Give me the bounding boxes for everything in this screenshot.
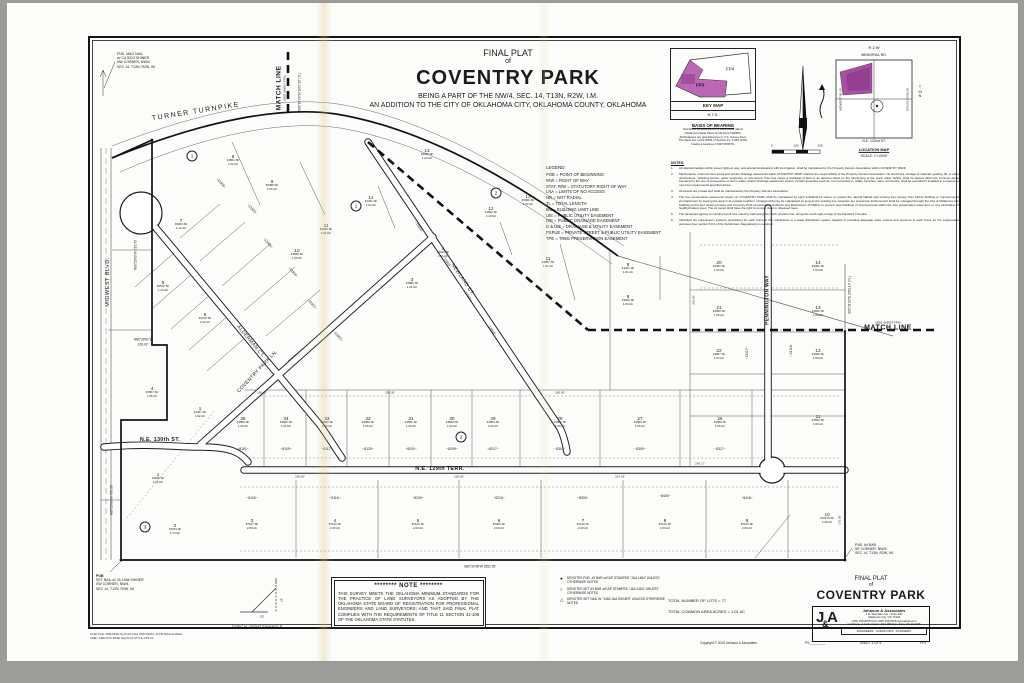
monument-symbol-item: ●DENOTES FND. #3 BAR w/CAP STAMPED "J&A … [560, 576, 670, 584]
lot-area-ac: 2.00 AC [659, 527, 672, 530]
lot-area-ac: 1.01 AC [622, 271, 635, 274]
legend-item: TPE = TREE PRESERVATION EASEMENT [546, 236, 676, 242]
dimension-label: 150.00' [385, 391, 395, 394]
lot-address: ~8400~ [659, 494, 671, 498]
basis-of-bearing: BASIS OF BEARING Grid North as establish… [662, 123, 764, 147]
plat-sheet: { "title_block": { "line1": "FINAL PLAT"… [0, 0, 1024, 683]
totals: TOTAL NUMBER OF LOTS = 77 TOTAL COMMON A… [668, 598, 745, 620]
lot-area-ac: 2.00 AC [741, 527, 754, 530]
lot-label: 3143560 SF1.00 AC [405, 416, 418, 428]
dimension-label: 160.00' [295, 475, 305, 478]
lot-label: 844201 SF1.01 AC [622, 262, 635, 274]
monument-symbol-glyph: ○ [560, 587, 567, 595]
survey-note-title: ******** NOTE ******** [338, 583, 479, 589]
lot-label: 549572 SF1.14 AC [157, 280, 170, 292]
lot-area-ac: 1.24 AC [421, 157, 434, 160]
legend-title: LEGEND: [546, 165, 676, 170]
lot-address: ~13117~ [745, 346, 749, 359]
lot-label: 387017 SF2.00 AC [246, 518, 259, 530]
note-item: 3.All streets are private and shall be m… [671, 190, 959, 194]
lot-area-ac: 1.00 AC [622, 303, 635, 306]
monument-symbol-text: DENOTES SET NAIL IN "1484 J&A SHINER" UN… [567, 597, 670, 605]
lot-address: ~8125~ [362, 447, 374, 451]
monument-symbol-text: DENOTES SET #3 BAR w/CAP STAMPED "J&A 14… [567, 587, 670, 595]
lot-label: 887120 SF2.00 AC [659, 518, 672, 530]
lot-label: 343985 SF1.01 AC [406, 277, 419, 289]
lot-label: 1143560 SF1.00 AC [812, 414, 825, 426]
note-item-text: Maintenance of all common areas and priv… [679, 173, 959, 188]
lot-label: 587120 SF2.00 AC [412, 518, 425, 530]
lot-area-ac: 2.00 AC [412, 527, 425, 530]
block-number-circle: 3 [140, 522, 151, 533]
corner-note-line: NW CORNER, NW/4, [117, 60, 155, 64]
lot-area-ac: 2.00 AC [577, 527, 590, 530]
monument-symbol-item: △DENOTES SET NAIL IN "1484 J&A SHINER" U… [560, 597, 670, 605]
firm-box: J & A Johnson & Associates 1 E. Sheridan… [812, 606, 930, 642]
copyright: Copyright © 2025 Johnson & Associates [700, 641, 805, 645]
lot-address: ~8209~ [446, 447, 458, 451]
monument-symbol-legend: ●DENOTES FND. #3 BAR w/CAP STAMPED "J&A … [560, 576, 670, 608]
lot-label: 2643560 SF1.00 AC [714, 416, 727, 428]
lot-address: ~8200~ [405, 447, 417, 451]
lot-label: 943560 SF1.00 AC [622, 294, 635, 306]
firm-info: Johnson & Associates 1 E. Sheridan Ave.,… [839, 607, 929, 641]
title-of: of [350, 58, 666, 65]
sight-triangle-dim-h: 25' [260, 615, 264, 618]
scale-bar-label: 200 [817, 144, 822, 147]
sight-triangle-dim-v: 25' [280, 598, 283, 602]
locmap-midwest-blvd: MIDWEST BLVD. [839, 87, 842, 110]
firm-logo: J & A [813, 607, 839, 641]
lot-area-ac: 1.12 AC [175, 227, 188, 230]
lot-area-ac: 1.01 AC [542, 265, 555, 268]
lot-label: 1044996 SF1.03 AC [291, 248, 304, 260]
locmap-range-label: R 2 W [868, 46, 879, 50]
lot-area-ac: 1.00 AC [634, 425, 647, 428]
corner-monument-note: FND. MAG NAILw/ CA 5313 SHINERNW CORNER,… [117, 52, 155, 69]
dimension-label: 150.00' [257, 391, 267, 394]
sheet-info-strip: Copyright © 2025 Johnson & Associates PV… [700, 641, 960, 645]
locmap-township-label: T 13 N [918, 85, 922, 99]
bearing-label: 100.00' [138, 343, 148, 346]
note-item: 5.The developer agrees to construct an 8… [671, 213, 959, 217]
lot-address: ~8309~ [634, 447, 646, 451]
lot-label: 749003 SF1.12 AC [175, 218, 188, 230]
lot-label: 2843560 SF1.00 AC [554, 416, 567, 428]
lot-label: 2045000 SF1.03 AC [713, 260, 726, 272]
block-number-circle: 1 [351, 201, 362, 212]
match-line-right-label: MATCH LINE [864, 325, 912, 332]
dimension-label: 142.35' [615, 475, 625, 478]
dimension-label: 175.00' [838, 515, 841, 525]
fp2-name: COVENTRY PARK [812, 588, 930, 602]
firm-logo-a: A [827, 609, 838, 626]
firm-cert: Certificate of Authorization #CA 983 Exp… [839, 623, 929, 626]
key-map-box: KEY MAP N.T.S. [670, 48, 756, 120]
note-item-text: All islands/medians within street rights… [679, 167, 907, 171]
lot-area-ac: 1.00 AC [713, 314, 726, 317]
corner-note-line: SEC 14, T13N, R2W, IM [855, 551, 893, 555]
block-number-circle: 1 [187, 151, 198, 162]
scale-bar-label: 0 [771, 144, 773, 147]
sheet-number: SHEET 3 OF 4 [860, 641, 920, 645]
survey-note-body: THIS SURVEY MEETS THE OKLAHOMA MINIMUM S… [338, 591, 479, 623]
plot-file-line: ACAD FILE: 4488 FINAL PLAT-FP3.dwg 03/07… [90, 633, 182, 637]
lot-label: 844501 SF1.02 AC [227, 154, 240, 166]
lot-area-ac: 1.03 AC [320, 232, 333, 235]
lot-area-ac: 1.01 AC [406, 286, 419, 289]
lot-label: 487120 SF2.00 AC [329, 518, 342, 530]
lot-area-ac: 1.00 AC [362, 425, 375, 428]
bearing-label: S00°21'03"E 2031.14' (TL) [848, 276, 851, 314]
dimension-label: 165.00' [555, 391, 565, 394]
corner-monument-note: POBSET NAIL w/ JA 1484 SHINERSW CORNER, … [96, 574, 144, 591]
dimension-label: 363.00' [692, 295, 695, 305]
title-addition: AN ADDITION TO THE CITY OF OKLAHOMA CITY… [350, 102, 666, 109]
lot-area-ac: 1.02 AC [227, 163, 240, 166]
lot-label: 687000 SF2.00 AC [493, 518, 506, 530]
survey-note-box: ******** NOTE ******** THIS SURVEY MEETS… [331, 577, 486, 628]
lot-label: 144407 SF1.02 AC [194, 406, 207, 418]
lot-label: 1143867 SF1.01 AC [542, 256, 555, 268]
legend: LEGEND: POB = POINT OF BEGINNINGR/W = RI… [546, 165, 676, 242]
street-label: MIDWEST BLVD. [106, 257, 112, 306]
lot-label: 3043560 SF1.00 AC [446, 416, 459, 428]
lot-label: 1244932 SF1.13 AC [485, 206, 498, 218]
sight-triangle-caption: TYPICAL SIGHT TRIANGLE [232, 625, 283, 629]
lot-area-ac: 1.00 AC [812, 314, 825, 317]
lot-area-ac: 1.03 AC [291, 257, 304, 260]
lot-area-ac: 1.04 AC [199, 321, 212, 324]
total-lots: TOTAL NUMBER OF LOTS = 77 [668, 598, 745, 603]
corner-note-line: SEC 14, T13N, R2W, IM [96, 587, 144, 591]
lot-address: ~8200~ [412, 496, 424, 500]
dimension-label: 160.00' [454, 475, 464, 478]
lot-label: 645210 SF1.04 AC [199, 312, 212, 324]
locmap-memorial-rd: MEMORIAL RD. [861, 54, 887, 58]
monument-symbol-text: DENOTES FND. #3 BAR w/CAP STAMPED "J&A 1… [567, 576, 670, 584]
note-item-number: 2. [671, 173, 679, 188]
lot-area-ac: 1.00 AC [152, 481, 165, 484]
lot-address: ~8109~ [280, 447, 292, 451]
lot-label: 1243560 SF1.00 AC [812, 348, 825, 360]
locmap-title: LOCATION MAP [859, 148, 890, 152]
lot-label: 987120 SF2.00 AC [741, 518, 754, 530]
notes-column: NOTES: 1.All islands/medians within stre… [671, 161, 959, 229]
lot-address: ~8117~ [321, 447, 332, 451]
note-item: 4.The tree preservation easements shown … [671, 196, 959, 211]
lot-label: 1354046 SF1.24 AC [421, 148, 434, 160]
locmap-n: N [918, 94, 922, 99]
street-label: N.E. 129th TERR. [415, 467, 464, 473]
note-item-number: 3. [671, 190, 679, 194]
subdivision-name: COVENTRY PARK [350, 67, 666, 90]
lot-area-ac: 1.00 AC [554, 425, 567, 428]
notes-title: NOTES: [671, 161, 959, 165]
monument-symbol-glyph: ● [560, 576, 567, 584]
title-final-plat: FINAL PLAT [350, 48, 666, 58]
lot-address: ~8216~ [493, 496, 505, 500]
lot-area-ac: 1.00 AC [321, 425, 334, 428]
street-label: N.E. 130th ST. [140, 438, 180, 444]
lot-label: 275234 SF1.73 AC [169, 523, 182, 535]
lot-area-ac: 1.00 AC [405, 425, 418, 428]
plot-file-info: ACAD FILE: 4488 FINAL PLAT-FP3.dwg 03/07… [90, 633, 182, 640]
lot-area-ac: 1.73 AC [169, 532, 182, 535]
lot-label: 445807 SF1.05 AC [146, 386, 159, 398]
key-map-nts: N.T.S. [671, 110, 755, 117]
lot-label: 3243560 SF1.00 AC [362, 416, 375, 428]
lot-area-ac: 1.00 AC [812, 357, 825, 360]
lot-area-ac: 1.02 AC [194, 415, 207, 418]
lot-label: 3543560 SF1.00 AC [237, 416, 250, 428]
note-item-text: All streets are private and shall be mai… [679, 190, 789, 194]
lot-area-ac: 1.03 AC [812, 269, 825, 272]
locmap-scale: SCALE: 1"=2000' [860, 155, 887, 159]
lot-address: ~8301~ [554, 447, 566, 451]
note-item: 2.Maintenance of all common areas and pr… [671, 173, 959, 188]
locmap-douglas-blvd: DOUGLAS BLVD. [906, 87, 909, 111]
bearing-label: N00°20'09"W 735.90' [110, 485, 113, 515]
corner-monument-note: FND. #4 BARSE CORNER, NW/4,SEC 14, T13N,… [855, 543, 893, 556]
lot-area-ac: 1.00 AC [714, 425, 727, 428]
lot-area-ac: 2.00 AC [246, 527, 259, 530]
match-line-top-sub: (SEE SHEET FP4) [283, 66, 287, 111]
sheet-code: FP3 [920, 641, 926, 645]
total-common-area: TOTAL COMMON AREA ACRES = 1.01 AC [668, 609, 745, 614]
lot-label: 1445000 SF1.03 AC [812, 260, 825, 272]
bearing-label: N89°39'51"E [134, 338, 152, 341]
lot-area-ac: 1.00 AC [446, 425, 459, 428]
title-block-small: FINAL PLAT of COVENTRY PARK [812, 576, 930, 602]
title-block: FINAL PLAT of COVENTRY PARK BEING A PART… [350, 48, 666, 109]
key-map-title: KEY MAP [671, 101, 755, 108]
lot-label: 10100479 SF2.39 AC [820, 512, 834, 524]
locmap-ne122-st: N.E. 122nd ST. [862, 140, 886, 144]
lot-area-ac: 2.00 AC [329, 527, 342, 530]
lot-area-ac: 1.00 AC [237, 425, 250, 428]
pv-field: PV:____.____ [805, 641, 860, 645]
match-line-right: (SEE SHEET FP4) MATCH LINE [864, 321, 912, 332]
bearing-label: S89°32'48"W 2652.05' [464, 565, 496, 568]
title-legal: BEING A PART OF THE NW/4, SEC. 14, T13N,… [350, 93, 666, 100]
legend-item: PSPUE = PRIVATE STREET & PUBLIC UTILITY … [546, 230, 676, 236]
note-item-number: 6. [671, 219, 679, 227]
match-line-top: MATCH LINE (SEE SHEET FP4) [276, 66, 287, 111]
lot-area-ac: 1.04 AC [266, 188, 279, 191]
match-line-top-label: MATCH LINE [276, 66, 283, 111]
note-item: 1.All islands/medians within street righ… [671, 167, 959, 171]
lot-area-ac: 1.13 AC [485, 215, 498, 218]
lot-address: ~8100~ [246, 496, 258, 500]
monument-symbol-item: ○DENOTES SET #3 BAR w/CAP STAMPED "J&A 1… [560, 587, 670, 595]
lot-area-ac: 1.03 AC [713, 357, 726, 360]
note-item-number: 4. [671, 196, 679, 211]
lot-address: ~8101~ [237, 447, 249, 451]
bearing-label: N00°15'29"W 1957.35' (TL) [298, 73, 301, 112]
bearing-label: N00°20'09"W 713.70' [134, 240, 137, 270]
lot-area-ac: 1.05 AC [146, 395, 159, 398]
note-item-text: The tree preservation easements shown on… [679, 196, 959, 211]
note-item: 6.Individual fire suppression systems (s… [671, 219, 959, 227]
scale-bar-label: 100 [793, 144, 798, 147]
lot-address: ~8217~ [487, 447, 499, 451]
monument-symbol-glyph: △ [560, 597, 567, 605]
lot-area-ac: 1.00 AC [280, 425, 293, 428]
lot-area-ac: 2.39 AC [820, 521, 834, 524]
lot-label: 1345000 SF1.03 AC [522, 194, 535, 206]
lot-label: 2244867 SF1.03 AC [713, 348, 726, 360]
lot-label: 945098 SF1.04 AC [266, 179, 279, 191]
note-item-text: The developer agrees to construct an 8-f… [679, 213, 867, 217]
lot-label: 3343560 SF1.00 AC [321, 416, 334, 428]
note-item-text: Individual fire suppression systems (spr… [679, 219, 959, 227]
lot-area-ac: 1.14 AC [157, 289, 170, 292]
lot-address: ~8317~ [714, 447, 726, 451]
block-number-circle: 2 [491, 188, 502, 199]
lot-area-ac: 1.00 AC [487, 425, 500, 428]
lot-address: ~8300~ [577, 496, 589, 500]
lot-label: 143946 SF1.00 AC [152, 472, 165, 484]
survey-note-inner: ******** NOTE ******** THIS SURVEY MEETS… [334, 580, 484, 626]
lot-label: 2743560 SF1.00 AC [634, 416, 647, 428]
plot-file-line: XREF: 4488-CIVIL BASE.dwg PLOT STYLE: FP… [90, 637, 182, 641]
lot-label: 1343560 SF1.00 AC [812, 305, 825, 317]
basis-of-bearing-line: having a bearing of N00°20'09"W. [662, 143, 764, 147]
note-item-number: 1. [671, 167, 679, 171]
lot-label: 787120 SF2.00 AC [577, 518, 590, 530]
lot-address: ~8416~ [741, 496, 753, 500]
dimension-label: 290.17' [695, 462, 705, 465]
lot-area-ac: 1.02 AC [365, 204, 378, 207]
lot-label: 2143560 SF1.00 AC [713, 305, 726, 317]
corner-note-line: SEC 14, T13N, R2W, IM [117, 65, 155, 69]
firm-services: · ENGINEERS · SURVEYORS · PLANNERS · [841, 628, 927, 635]
key-map-fp4-label: FP4 [726, 68, 734, 73]
street-label: PENNINGTON WAY [765, 275, 770, 325]
lot-area-ac: 1.00 AC [812, 423, 825, 426]
block-number-circle: 2 [456, 432, 467, 443]
lot-label: 1244341 SF1.02 AC [365, 195, 378, 207]
lot-label: 1144936 SF1.03 AC [320, 223, 333, 235]
lot-area-ac: 1.03 AC [713, 269, 726, 272]
lot-area-ac: 2.00 AC [493, 527, 506, 530]
lot-label: 2943560 SF1.00 AC [487, 416, 500, 428]
key-map-fp3-label: FP3 [696, 84, 704, 89]
lot-label: 3443560 SF1.00 AC [280, 416, 293, 428]
lot-address: ~8116~ [329, 496, 340, 500]
note-item-number: 5. [671, 213, 679, 217]
lot-area-ac: 1.03 AC [522, 203, 535, 206]
lot-address: ~13116~ [789, 343, 793, 356]
